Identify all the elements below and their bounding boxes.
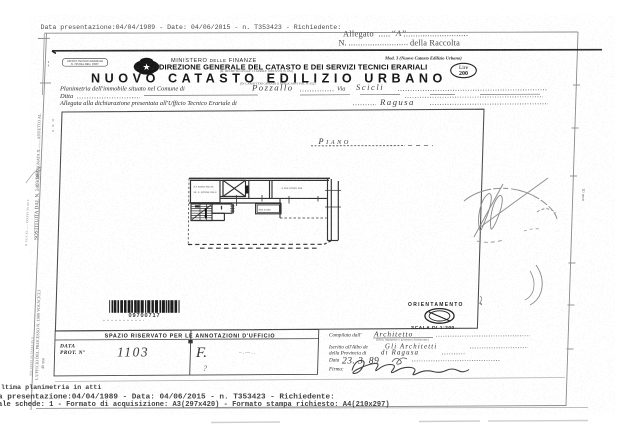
svg-text:n. xx x xx ...... xxxxxx xx xx: n. xx x xx ...... xxxxxx xx xx x (24, 199, 30, 246)
